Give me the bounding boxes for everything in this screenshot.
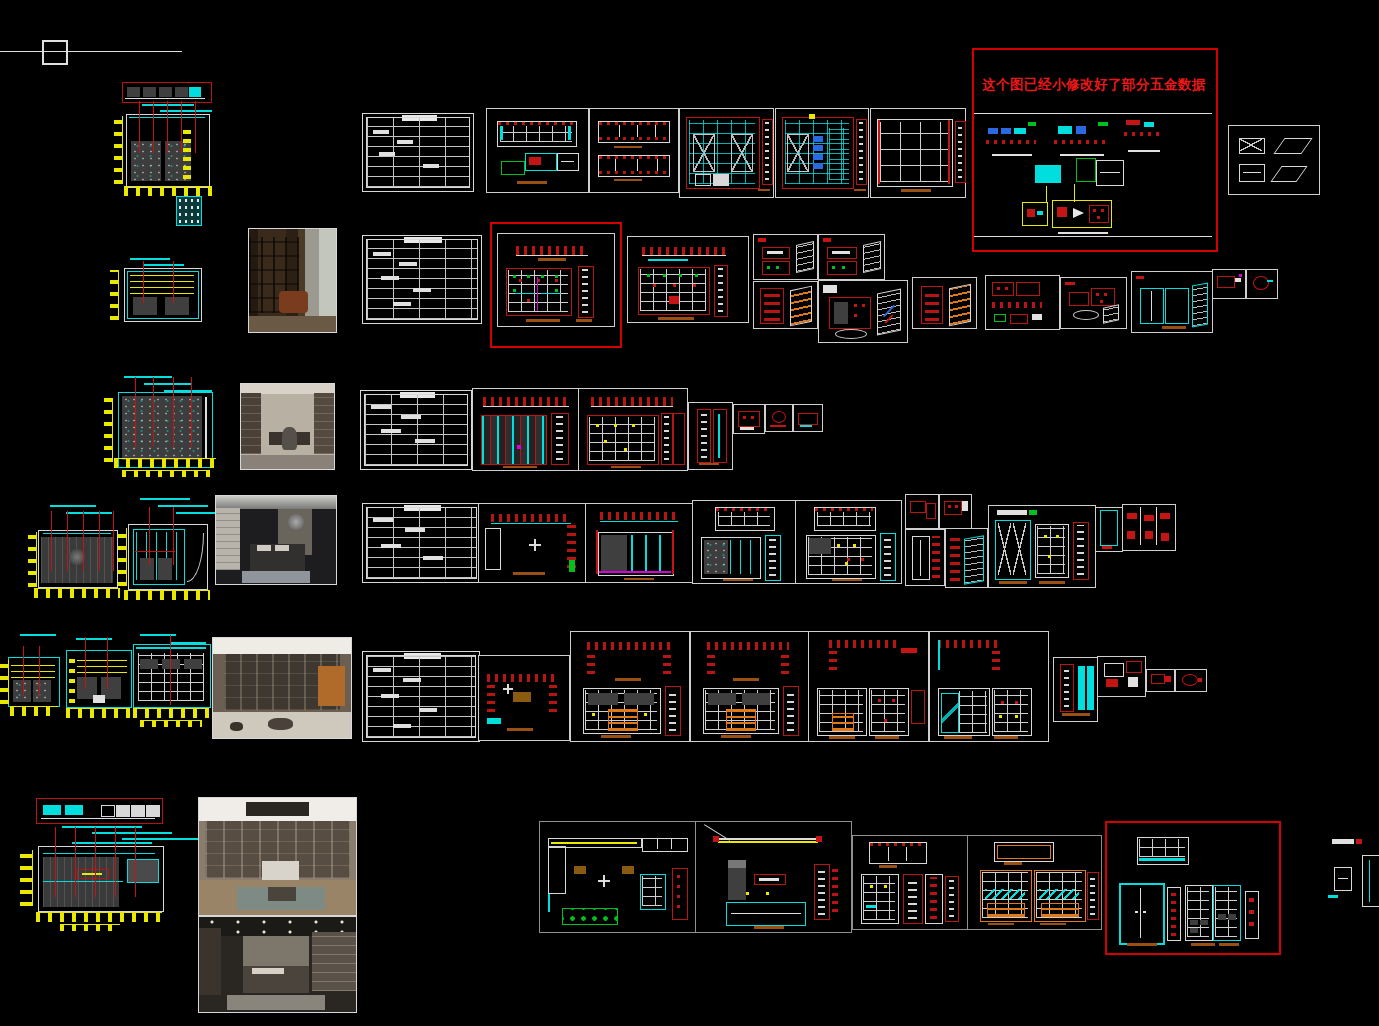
detail-tiny-4[interactable] [765, 404, 793, 432]
drawing-cluster-a[interactable] [112, 78, 228, 230]
dots [948, 505, 951, 508]
tower [1060, 664, 1074, 712]
table-entries [373, 252, 391, 256]
bar [832, 251, 850, 254]
scale-bar [994, 736, 1018, 739]
dots [878, 699, 881, 702]
drawing-striped-elevation[interactable] [472, 388, 581, 471]
plan-leg [587, 650, 595, 674]
detail-tiny-3[interactable] [733, 404, 765, 434]
drawing-cluster-row4a[interactable] [26, 495, 126, 605]
detail-drawer-small-1[interactable] [753, 234, 818, 280]
scale-bar [721, 735, 751, 738]
leader-lines [55, 827, 56, 897]
cyan-line [600, 521, 678, 522]
spec-table-5[interactable] [362, 651, 480, 742]
section [932, 536, 940, 578]
plan-leg [707, 650, 715, 674]
door-iso [877, 288, 901, 335]
drawing-wardrobe-combo-2[interactable] [795, 500, 902, 584]
render-photo-dark-bedroom[interactable] [215, 495, 337, 585]
drawing-cluster-row5[interactable] [0, 628, 215, 740]
plan-leg [781, 650, 789, 674]
base-cabinet [726, 902, 806, 926]
tower [814, 864, 830, 920]
detail-tiny-6[interactable] [905, 494, 939, 529]
x-panel [995, 520, 1031, 580]
red-part [1126, 120, 1140, 125]
panel-fill [131, 141, 161, 181]
hardware-detail-1[interactable] [986, 120, 1040, 148]
scale-bar [1191, 943, 1215, 946]
detail-shelf-stack-2[interactable] [912, 277, 977, 329]
dots [837, 544, 840, 547]
elevation-left [938, 688, 990, 736]
render-photo-study[interactable] [240, 383, 335, 470]
drawing-closet-plan[interactable] [478, 655, 570, 741]
ticks [599, 156, 667, 159]
jambs [596, 530, 598, 574]
bar [759, 878, 779, 881]
blue-parts [988, 128, 998, 134]
scale-bar [614, 146, 642, 148]
panel-fill [133, 297, 157, 315]
detail-tiny-5[interactable] [793, 404, 823, 432]
drawing-wardrobe-front-3[interactable] [870, 108, 966, 198]
grid [959, 691, 987, 733]
drawing-wardrobe-combo-1[interactable] [692, 500, 798, 584]
dividers [888, 847, 889, 861]
orange-cabinet [318, 666, 346, 706]
ticks [718, 268, 723, 312]
dim-row-2 [122, 470, 210, 477]
detail-door-panels[interactable] [1131, 271, 1213, 333]
dim-row [34, 588, 120, 598]
tower [783, 686, 799, 736]
grid [880, 122, 948, 182]
dots [767, 266, 770, 269]
drawing-cluster-row4b[interactable] [118, 490, 218, 605]
revision-annotation-box[interactable]: 这个图已经小修改好了部分五金数据 [972, 48, 1218, 252]
arrow [885, 314, 894, 323]
dim-row [114, 458, 216, 468]
dots [1001, 701, 1004, 704]
top-cabinet [1137, 837, 1189, 865]
tag-bar [997, 510, 1027, 515]
desk-elevation[interactable] [38, 846, 164, 912]
ticks [669, 689, 676, 731]
highlight-box-wardrobe[interactable] [1105, 821, 1281, 955]
shelf-grid [829, 128, 849, 180]
split [1151, 291, 1152, 321]
plan-accent [189, 87, 201, 97]
box [1104, 663, 1124, 677]
grid [500, 126, 572, 142]
detail-drawer-small-2[interactable] [818, 234, 885, 280]
chip [1198, 678, 1202, 682]
hatch [704, 540, 728, 574]
drawing-closet-elevation-a[interactable] [570, 631, 690, 742]
chips [1218, 914, 1226, 920]
shelves [930, 877, 937, 919]
bench [268, 887, 296, 901]
top-cabinet [994, 842, 1054, 862]
brace [1013, 523, 1026, 575]
drawing-cluster-b[interactable] [110, 256, 210, 326]
cyan-part [1144, 122, 1154, 127]
revision-note-text[interactable]: 这个图已经小修改好了部分五金数据 [982, 76, 1206, 94]
chip [1235, 278, 1241, 282]
drawing-tall-sections[interactable] [688, 402, 733, 470]
shelf-column [921, 286, 943, 324]
detail-hardware-set-2[interactable] [1060, 277, 1127, 329]
island [513, 692, 531, 702]
cyan-unit [640, 874, 666, 910]
side-bits [832, 868, 838, 912]
tower [673, 413, 685, 465]
ticks [949, 879, 954, 917]
cyan-part [1014, 128, 1026, 134]
dim-column [114, 116, 123, 184]
elevation-1[interactable] [8, 657, 60, 707]
scale-bar [999, 581, 1027, 584]
box [1069, 292, 1089, 306]
drawing-tall-panels[interactable] [1053, 657, 1098, 722]
cyan-part [1058, 126, 1072, 134]
right-wall [549, 682, 557, 712]
drawing-cabinet-strips[interactable] [589, 108, 679, 193]
drawers [1041, 903, 1079, 917]
detail-hardware-set-1[interactable] [985, 275, 1060, 330]
drawing-closet-elevation-b[interactable] [690, 631, 809, 742]
drawing-wardrobe-front-1[interactable] [679, 108, 774, 198]
drawing-plan-u-shape[interactable] [478, 503, 588, 583]
detail-cyan-panel[interactable] [1095, 507, 1123, 552]
top-line [43, 533, 111, 534]
spec-table-2[interactable] [362, 235, 482, 324]
shelf-unit [312, 932, 356, 991]
tower [697, 409, 711, 463]
door-split [1140, 888, 1141, 938]
red-box [1089, 205, 1109, 223]
grid [994, 690, 1028, 732]
tower [925, 874, 943, 924]
ring [772, 411, 786, 423]
wardrobe-elevation[interactable] [126, 114, 210, 188]
hardware-detail-2[interactable] [1054, 120, 1110, 148]
chip [1267, 280, 1273, 282]
spec-table-4[interactable] [362, 503, 481, 583]
dots [1044, 535, 1047, 538]
cyan-bar [648, 259, 688, 261]
table-entries [373, 130, 389, 134]
rug [242, 571, 309, 583]
green-hatch-bench [562, 908, 618, 925]
plan-module-fill [127, 87, 140, 97]
drawing-sliding-doors[interactable] [585, 503, 695, 583]
leader-bars [50, 505, 96, 507]
shelf-column [760, 288, 784, 324]
side-tower [955, 121, 966, 183]
table-grid [366, 117, 470, 188]
scale-bar [1219, 943, 1239, 946]
cyan-panel [1087, 666, 1094, 710]
top-panels [708, 693, 736, 705]
plan-top [707, 642, 789, 650]
grid-unit [1035, 524, 1069, 578]
dim-column [118, 528, 127, 586]
green-part [1028, 122, 1036, 126]
detail-tiny-1[interactable] [1212, 269, 1246, 299]
drawing-x-brace-unit[interactable] [988, 505, 1096, 588]
dim-column [104, 398, 113, 462]
drawing-closet-elevation-d[interactable] [929, 631, 1049, 742]
drawing-bottom-elevation[interactable] [695, 821, 852, 933]
detail-small-parts-3[interactable] [1175, 669, 1207, 692]
strip-1 [598, 121, 670, 143]
drawing-edge-partial[interactable] [1328, 835, 1379, 913]
panels [140, 558, 154, 580]
callout-detail-1[interactable] [1022, 202, 1048, 226]
tower [765, 535, 781, 581]
drawing-panel-isometrics[interactable] [1228, 125, 1320, 195]
chip [962, 501, 968, 511]
drawer-stack [813, 136, 823, 142]
dark-elevation[interactable] [38, 530, 118, 588]
bar [800, 425, 812, 427]
rug [227, 995, 324, 1010]
plan-top [587, 642, 671, 650]
render-photo-bedroom-2[interactable] [198, 916, 357, 1013]
door-iso [964, 535, 984, 585]
drawing-bottom-towers[interactable] [852, 835, 968, 930]
chip [1165, 676, 1171, 682]
underline [1128, 150, 1160, 152]
base-box [93, 695, 105, 703]
door-panel [787, 134, 809, 172]
cabinet-plan-strip[interactable] [122, 82, 212, 103]
red-detail [669, 296, 679, 304]
tower [665, 686, 681, 736]
fill [834, 302, 848, 324]
drawing-cluster-bottom-left[interactable] [18, 824, 198, 939]
stone-wall [243, 936, 309, 968]
section-marker-square[interactable] [42, 40, 68, 65]
box [926, 503, 936, 519]
scale-bar [1039, 581, 1065, 584]
dim-row [10, 706, 58, 716]
shelf-lines [11, 662, 55, 678]
stripe-fill [481, 415, 547, 465]
section-line[interactable] [0, 51, 182, 52]
board-iso [1270, 166, 1307, 182]
box [1126, 661, 1142, 673]
cyan-splits [631, 535, 633, 571]
dash [561, 161, 574, 162]
cyan-edge [548, 894, 550, 912]
section-detail[interactable] [176, 196, 202, 226]
leader-bars [20, 634, 56, 636]
scale-bar [601, 735, 631, 738]
white-chip [1032, 314, 1042, 320]
render-photo-walkin-closet[interactable] [212, 637, 352, 739]
underline [1058, 232, 1108, 234]
drawing-top-cabinet-detail[interactable] [486, 108, 589, 193]
detail-tiny-2[interactable] [1246, 269, 1278, 299]
dim-row-2 [140, 720, 202, 727]
dividers [619, 125, 620, 137]
cyan-part [1037, 211, 1043, 215]
ticks [582, 269, 588, 313]
drawing-bottom-plan[interactable] [539, 821, 698, 933]
bar [82, 873, 102, 875]
scale-bar [944, 736, 972, 739]
ceiling-recess [246, 802, 309, 816]
render-photo-shelving-lounge[interactable] [248, 228, 337, 333]
leaders [23, 646, 24, 696]
spec-table-1[interactable] [362, 113, 474, 192]
detail-cabinet-iso[interactable] [818, 280, 908, 343]
left-cabinet [241, 393, 261, 454]
elevation [806, 535, 876, 579]
detail-tiny-7[interactable] [939, 494, 972, 529]
box [910, 501, 926, 513]
dots [1096, 293, 1099, 296]
dots [854, 304, 857, 307]
chip [1356, 839, 1362, 844]
drawing-door-section-1[interactable] [905, 529, 945, 586]
drawing-plan-strip-bottom[interactable] [36, 798, 163, 824]
fill [13, 680, 31, 702]
open-unit-cyan [1213, 885, 1241, 941]
grid [1187, 887, 1209, 937]
drawing-elevation-row2[interactable] [627, 236, 749, 323]
dots [997, 287, 1000, 290]
wardrobe-frame [686, 117, 760, 189]
wardrobe-1 [980, 870, 1032, 922]
ticks [787, 689, 794, 731]
ticks [870, 843, 924, 846]
ticks [769, 538, 776, 576]
part [1106, 679, 1118, 687]
chip [1102, 546, 1112, 549]
grid [1215, 887, 1237, 937]
top-cabinet [814, 507, 876, 531]
shelf-lines [130, 274, 194, 294]
ticks [859, 122, 863, 180]
dividers [1140, 507, 1141, 545]
ticks [884, 536, 891, 576]
parts [1127, 513, 1137, 519]
wardrobe-2 [1034, 870, 1086, 922]
curtain [199, 928, 221, 995]
drawing-orange-wardrobes[interactable] [967, 835, 1102, 930]
part [1128, 677, 1138, 687]
ticks [701, 412, 707, 458]
ticks [908, 877, 917, 919]
hanger-row [1039, 889, 1079, 899]
leader [170, 635, 171, 705]
ticks [1124, 132, 1160, 136]
drawing-closet-elevation-c[interactable] [808, 631, 929, 742]
spec-table-3[interactable] [360, 390, 472, 470]
detail-red [529, 157, 541, 165]
plan-leg [992, 648, 1000, 670]
cad-model-canvas[interactable]: 这个图已经小修改好了部分五金数据 [0, 0, 1379, 1026]
box [1091, 288, 1115, 306]
detail-small-parts-1[interactable] [1097, 656, 1146, 697]
drawing-door-section-2[interactable] [945, 528, 988, 588]
split [920, 540, 921, 576]
ring [1182, 674, 1198, 686]
grid [508, 270, 568, 312]
section-elevation[interactable] [128, 524, 208, 590]
dim-ticks [498, 122, 574, 125]
detail-box-green [501, 161, 525, 175]
inner [133, 529, 185, 585]
curved-section [187, 533, 204, 582]
dots [870, 885, 873, 888]
drawing-cluster-row3[interactable] [100, 372, 220, 482]
ticks [1090, 875, 1095, 915]
cabinet [587, 415, 659, 465]
mid-line [731, 913, 801, 914]
callout-detail-2[interactable] [1052, 200, 1112, 228]
end-caps [500, 126, 503, 140]
dim-row [124, 186, 212, 196]
render-photo-closet-island[interactable] [198, 797, 357, 916]
hatched-elevation[interactable] [118, 392, 213, 468]
left-wall [487, 682, 495, 712]
leaders [85, 637, 86, 689]
two-door-wardrobe [1119, 883, 1165, 945]
stool [622, 866, 634, 874]
ceiling [216, 496, 336, 509]
detail-shelf-stack-1[interactable] [753, 281, 818, 329]
scale-bar [576, 319, 592, 322]
modules [101, 805, 115, 817]
plan-leg [829, 648, 837, 670]
box [1016, 282, 1040, 296]
hinge-dots [647, 274, 650, 277]
hardware-detail-3[interactable] [1124, 118, 1164, 142]
ticks [1077, 525, 1084, 575]
top-panels [588, 693, 618, 705]
cyan-line [718, 414, 720, 458]
green-chip [994, 314, 1006, 322]
elevation-2[interactable] [66, 650, 132, 708]
side-frames [878, 120, 880, 184]
diag [1240, 139, 1262, 151]
elevation [703, 688, 779, 734]
drawing-wardrobe-front-2[interactable] [775, 108, 869, 198]
detail-parts-grid[interactable] [1122, 504, 1176, 551]
drawing-highlighted-elevation[interactable] [497, 233, 615, 327]
elevation-3[interactable] [133, 644, 211, 708]
leader-bars [130, 258, 170, 260]
ticks [556, 416, 563, 460]
drawing-grid-elevation[interactable] [578, 388, 688, 471]
highlight-box-elevation[interactable] [490, 222, 622, 348]
door-iso [1192, 283, 1208, 328]
round-mirror [288, 514, 304, 530]
cabinet-elevation[interactable] [124, 268, 202, 322]
detail-small-parts-2[interactable] [1146, 669, 1175, 692]
strip-2 [598, 155, 670, 177]
scale-bar [615, 678, 641, 681]
red-tower [672, 868, 688, 920]
dim-strip [69, 655, 75, 703]
